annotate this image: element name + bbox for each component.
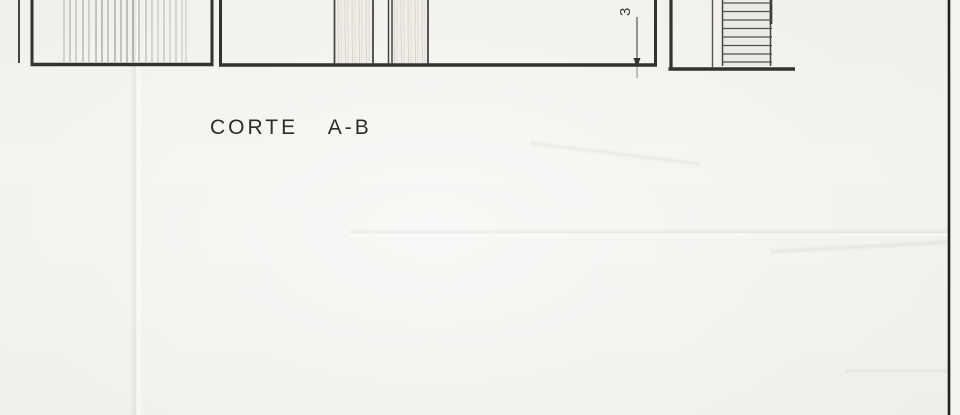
wood-post-left: [335, 0, 374, 64]
staircase-treads: [722, 0, 772, 66]
sheet-edge-line: [949, 0, 960, 415]
dimension-line-vertical: 3: [617, 8, 641, 78]
main-room-outline: [219, 0, 657, 66]
dimension-text: 3: [617, 8, 634, 16]
section-title: CORTE A-B: [210, 117, 372, 138]
section-drawing-linework: 3: [0, 0, 960, 415]
masonry-hatch-lines: [64, 0, 186, 62]
wood-post-right: [389, 0, 429, 64]
scanned-drawing-sheet: 3: [0, 0, 960, 415]
